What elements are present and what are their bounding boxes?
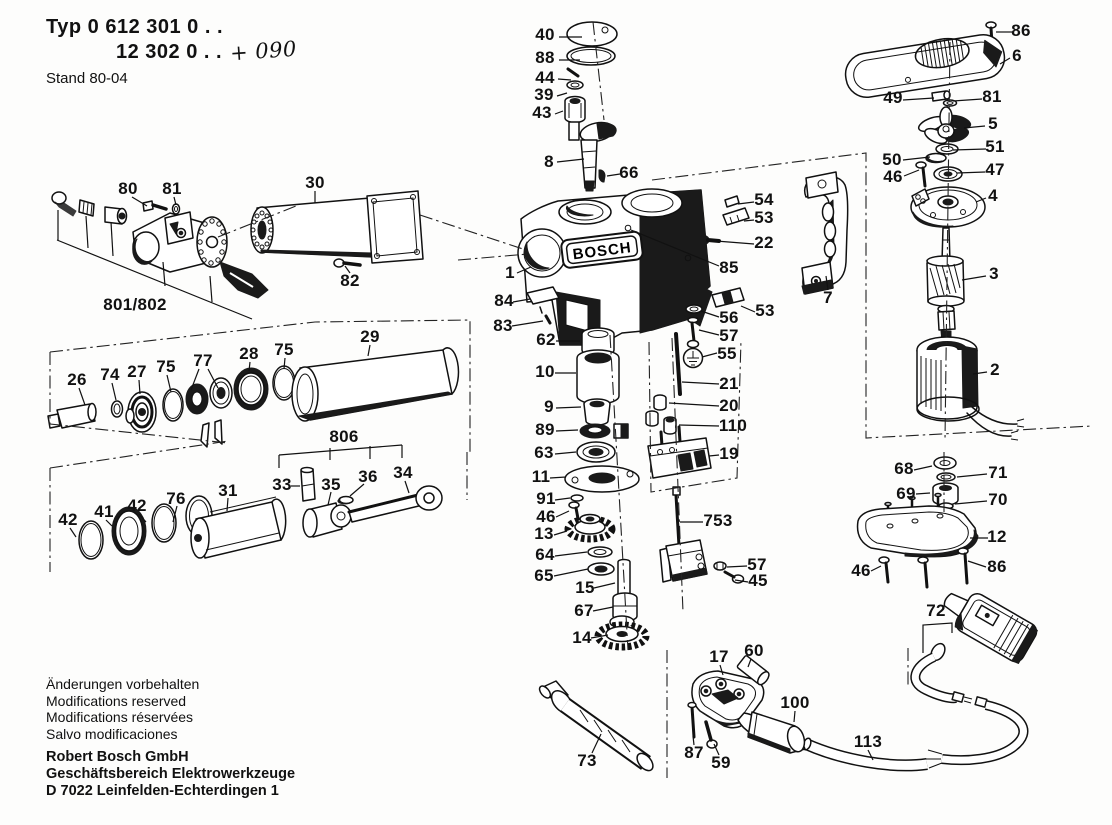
leader-line-20 <box>669 403 719 406</box>
leader-line-54 <box>738 202 754 204</box>
part-label-19: 19 <box>719 444 739 464</box>
leader-line-46 <box>904 170 919 176</box>
part-label-68: 68 <box>894 459 914 479</box>
part-label-53: 53 <box>755 301 775 321</box>
crank-shaft-stack <box>565 22 617 191</box>
notice-line: Modifications réservées <box>46 709 295 726</box>
part-label-113: 113 <box>854 732 882 752</box>
part-label-53: 53 <box>754 208 774 228</box>
company-line: Robert Bosch GmbH <box>46 749 295 766</box>
leader-line-55 <box>702 353 717 357</box>
leader-line-43 <box>555 111 563 114</box>
title-block: Typ 0 612 301 0 . . 12 302 0 . .+ 090 St… <box>46 16 297 87</box>
type-code-line2: 12 302 0 . . <box>116 41 222 63</box>
part-label-75: 75 <box>156 357 176 377</box>
leader-line-3 <box>962 276 986 280</box>
leader-line-67 <box>593 607 613 611</box>
part-label-43: 43 <box>532 103 552 123</box>
part-label-69: 69 <box>896 484 916 504</box>
part-label-65: 65 <box>534 566 554 586</box>
part-label-85: 85 <box>719 258 739 278</box>
part-label-73: 73 <box>577 751 597 771</box>
part-label-5: 5 <box>988 114 998 134</box>
part-label-74: 74 <box>100 365 120 385</box>
part-label-34: 34 <box>393 463 413 483</box>
part-label-57: 57 <box>719 326 739 346</box>
plug-and-cable <box>802 580 1040 768</box>
part-label-64: 64 <box>535 545 555 565</box>
leader-line-8 <box>557 159 584 162</box>
part-label-76: 76 <box>166 489 186 509</box>
part-label-89: 89 <box>535 420 555 440</box>
leader-line-69 <box>916 493 930 494</box>
leader-line-21 <box>682 382 719 384</box>
part-label-30: 30 <box>305 173 325 193</box>
bracket-line-1 <box>86 216 88 248</box>
notice-line: Änderungen vorbehalten <box>46 676 295 693</box>
part-label-86: 86 <box>1011 21 1031 41</box>
part-label-49: 49 <box>883 88 903 108</box>
part-label-27: 27 <box>127 362 147 382</box>
part-label-21: 21 <box>719 374 739 394</box>
part-label-54: 54 <box>754 190 774 210</box>
part-label-20: 20 <box>719 396 739 416</box>
leader-line-65 <box>554 569 588 576</box>
notice-line: Modifications reserved <box>46 693 295 710</box>
leader-line-91 <box>555 498 570 500</box>
company-address: Robert Bosch GmbHGeschäftsbereich Elektr… <box>46 749 295 800</box>
leader-line-81 <box>953 99 982 101</box>
part-label-4: 4 <box>988 186 998 206</box>
part-label-100: 100 <box>780 693 809 713</box>
part-label-71: 71 <box>988 463 1008 483</box>
part-label-110: 110 <box>719 416 747 436</box>
leader-line-57 <box>727 566 747 567</box>
part-label-36: 36 <box>358 467 378 487</box>
type-code-line1: 0 612 301 0 . . <box>88 16 223 38</box>
leader-line-26 <box>79 388 85 405</box>
side-handle <box>802 172 848 294</box>
leader-line-110 <box>679 425 719 426</box>
centerline-13 <box>420 215 526 250</box>
part-label-46: 46 <box>851 561 871 581</box>
leader-line-89 <box>556 430 578 431</box>
part-label-56: 56 <box>719 308 739 328</box>
part-label-45: 45 <box>748 571 768 591</box>
part-label-91: 91 <box>536 489 556 509</box>
part-label-17: 17 <box>709 647 729 667</box>
part-label-3: 3 <box>989 264 999 284</box>
part-label-12: 12 <box>987 527 1007 547</box>
leader-line-9 <box>556 407 581 408</box>
leader-line-70 <box>955 501 987 504</box>
leader-line-49 <box>903 98 934 100</box>
part-label-88: 88 <box>535 48 555 68</box>
footer-block: Änderungen vorbehaltenModifications rese… <box>46 676 295 800</box>
leader-line-64 <box>555 552 587 556</box>
part-label-55: 55 <box>717 344 737 364</box>
leader-line-53 <box>744 220 754 221</box>
leader-line-39 <box>557 93 567 96</box>
type-code-suffix-handwritten: + 090 <box>229 37 297 66</box>
leader-line-13 <box>554 531 567 535</box>
part-label-86: 86 <box>987 557 1007 577</box>
part-label-59: 59 <box>711 753 731 773</box>
part-label-26: 26 <box>67 370 87 390</box>
notice-line: Salvo modificaciones <box>46 726 295 743</box>
leader-line-15 <box>594 583 615 588</box>
leader-line-74 <box>112 383 116 400</box>
part-label-28: 28 <box>239 344 259 364</box>
part-label-77: 77 <box>193 351 213 371</box>
part-label-39: 39 <box>534 85 554 105</box>
part-label-11: 11 <box>532 467 551 487</box>
fan <box>917 107 972 147</box>
part-label-29: 29 <box>360 327 380 347</box>
part-label-8: 8 <box>544 152 554 172</box>
part-label-41: 41 <box>94 502 114 522</box>
leader-line-19 <box>709 455 719 456</box>
part-label-81: 81 <box>162 179 182 199</box>
part-label-63: 63 <box>534 443 554 463</box>
part-label-13: 13 <box>534 524 554 544</box>
part-label-14: 14 <box>572 628 592 648</box>
part-label-22: 22 <box>754 233 774 253</box>
part-label-75: 75 <box>274 340 294 360</box>
part-label-83: 83 <box>493 316 513 336</box>
part-label-81: 81 <box>982 87 1002 107</box>
part-label-72: 72 <box>926 601 946 621</box>
part-label-9: 9 <box>544 397 554 417</box>
part-label-67: 67 <box>574 601 594 621</box>
part-label-40: 40 <box>535 25 555 45</box>
part-label-806: 806 <box>329 427 358 447</box>
part-label-15: 15 <box>575 578 595 598</box>
part-label-31: 31 <box>218 481 238 501</box>
leader-line-66 <box>607 174 620 176</box>
leader-line-44 <box>558 79 571 80</box>
part-label-1: 1 <box>505 263 515 283</box>
part-label-7: 7 <box>823 288 833 308</box>
exploded-parts-diagram: BOSCH <box>0 0 1112 825</box>
leader-line-68 <box>914 466 932 470</box>
typ-label: Typ <box>46 16 82 38</box>
part-label-82: 82 <box>340 271 360 291</box>
leader-line-71 <box>957 474 987 477</box>
part-label-80: 80 <box>118 179 138 199</box>
part-label-801-802: 801/802 <box>103 295 167 315</box>
part-label-753: 753 <box>703 511 732 531</box>
part-label-84: 84 <box>494 291 514 311</box>
part-label-10: 10 <box>535 362 555 382</box>
part-label-42: 42 <box>127 496 147 516</box>
part-label-47: 47 <box>985 160 1005 180</box>
part-label-87: 87 <box>684 743 704 763</box>
leader-line-53 <box>741 306 755 312</box>
bracket-line-2 <box>111 222 113 256</box>
leader-line-22 <box>716 241 754 244</box>
company-line: Geschäftsbereich Elektrowerkzeuge <box>46 766 295 783</box>
part-label-6: 6 <box>1012 46 1022 66</box>
bracket-line-4 <box>210 276 212 302</box>
modification-notices: Änderungen vorbehaltenModifications rese… <box>46 676 295 742</box>
stand-revision: Stand 80-04 <box>46 70 297 87</box>
part-label-51: 51 <box>985 137 1005 157</box>
leader-line-83 <box>512 321 543 326</box>
part-label-2: 2 <box>990 360 1000 380</box>
gearbox-stack <box>565 328 646 647</box>
leader-line-11 <box>550 477 566 478</box>
part-label-33: 33 <box>272 475 292 495</box>
part-label-35: 35 <box>321 475 341 495</box>
part-label-46: 46 <box>883 167 903 187</box>
part-label-42: 42 <box>58 510 78 530</box>
company-line: D 7022 Leinfelden-Echterdingen 1 <box>46 783 295 800</box>
part-label-62: 62 <box>536 330 556 350</box>
leader-line-86 <box>968 561 986 567</box>
spindle-assembly <box>52 191 423 298</box>
centerline-9 <box>50 441 228 468</box>
part-label-70: 70 <box>988 490 1008 510</box>
leader-line-46 <box>871 566 881 571</box>
leader-line-63 <box>555 452 576 454</box>
centerline-14 <box>458 254 528 260</box>
leader-line-46 <box>556 511 569 517</box>
part-label-66: 66 <box>619 163 639 183</box>
leader-line-57 <box>699 330 719 335</box>
part-label-60: 60 <box>744 641 764 661</box>
